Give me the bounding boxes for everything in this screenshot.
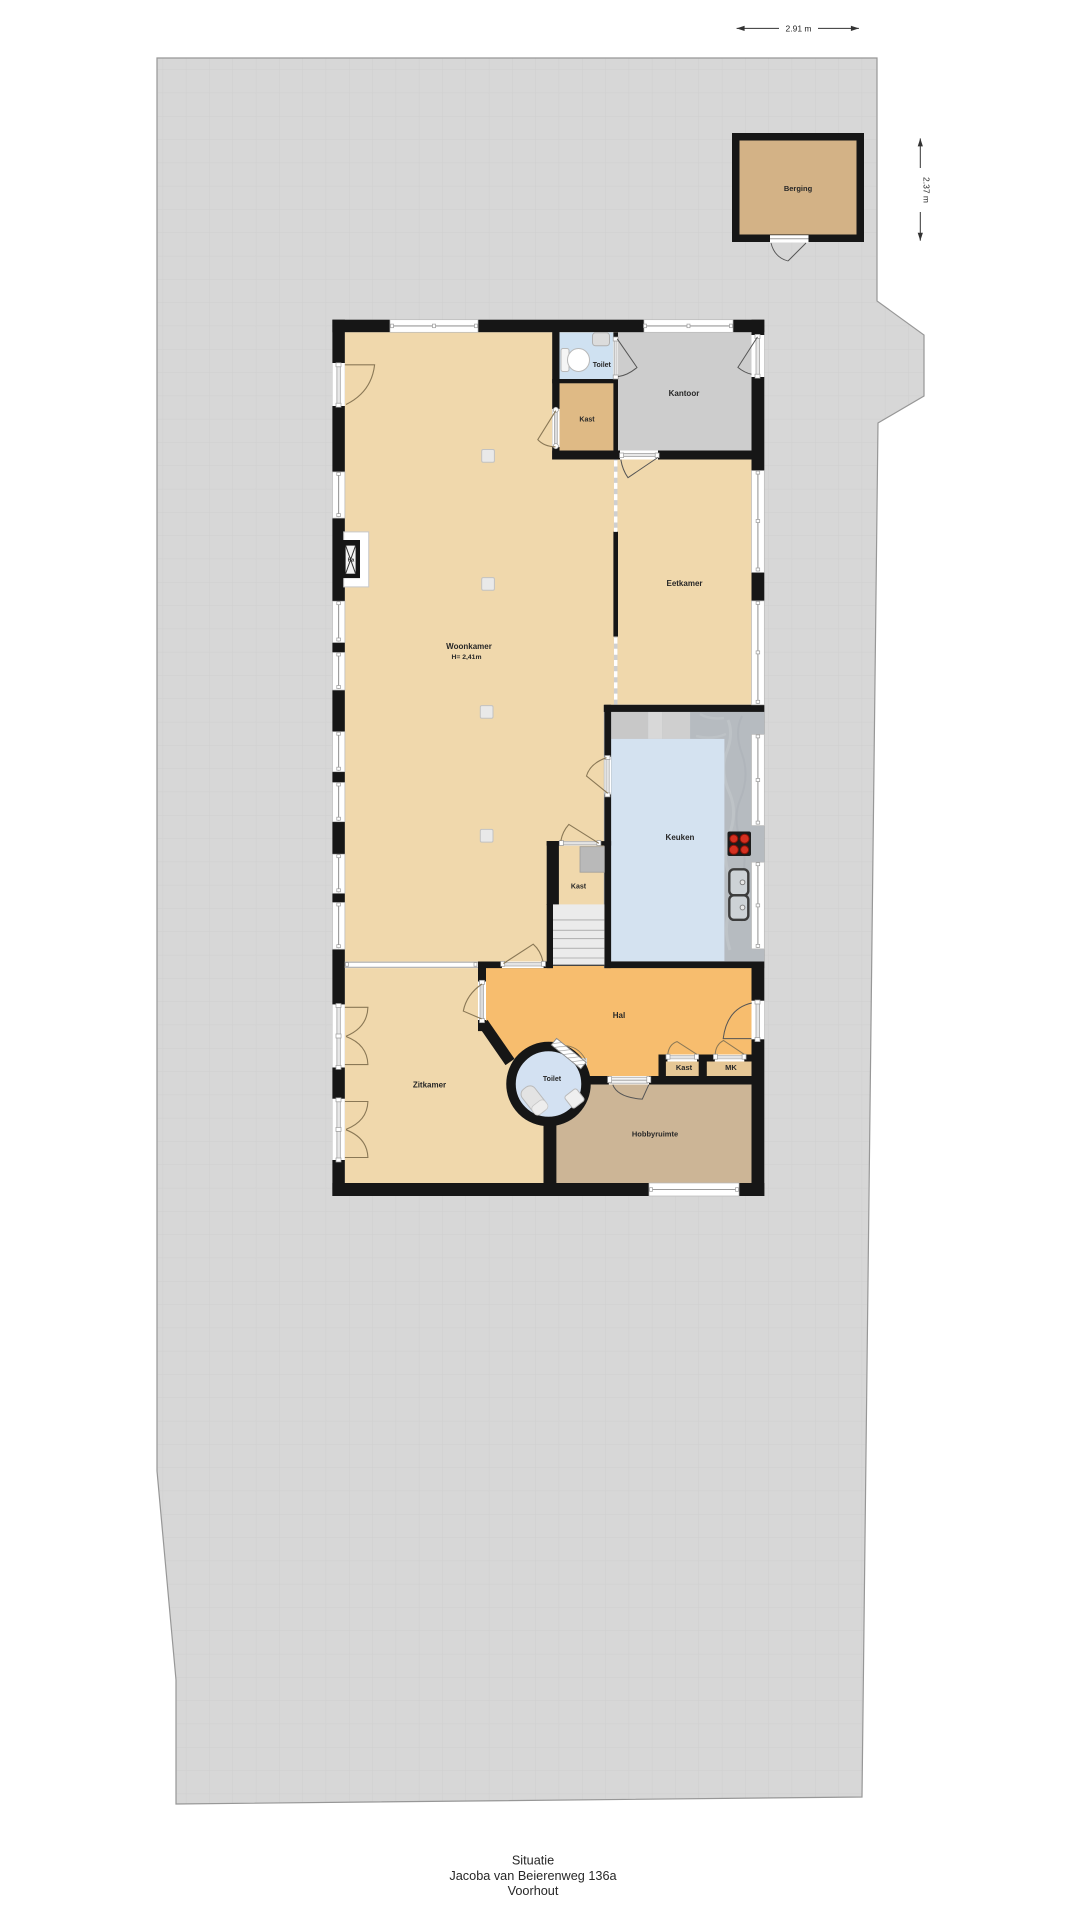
svg-text:Kantoor: Kantoor: [669, 389, 700, 398]
svg-text:Toilet: Toilet: [593, 362, 612, 369]
svg-text:H= 2,41m: H= 2,41m: [451, 654, 481, 661]
svg-text:Berging: Berging: [784, 184, 813, 193]
svg-text:Jacoba van Beierenweg 136a: Jacoba van Beierenweg 136a: [449, 1869, 617, 1883]
svg-text:Toilet: Toilet: [543, 1076, 562, 1083]
svg-text:MK: MK: [725, 1063, 737, 1072]
svg-text:Woonkamer: Woonkamer: [446, 642, 492, 651]
svg-text:Zitkamer: Zitkamer: [413, 1080, 446, 1089]
svg-text:Situatie: Situatie: [512, 1854, 554, 1868]
svg-text:Hobbyruimte: Hobbyruimte: [632, 1130, 678, 1139]
svg-text:2.37 m: 2.37 m: [921, 177, 931, 203]
svg-text:Keuken: Keuken: [666, 833, 695, 842]
svg-text:Kast: Kast: [676, 1063, 693, 1072]
svg-text:Ha: Ha: [348, 558, 355, 564]
svg-text:Hal: Hal: [613, 1011, 625, 1020]
svg-text:Kast: Kast: [579, 417, 595, 424]
svg-text:Kast: Kast: [571, 884, 587, 891]
svg-text:Voorhout: Voorhout: [508, 1884, 559, 1898]
svg-text:Eetkamer: Eetkamer: [666, 579, 702, 588]
svg-text:2.91 m: 2.91 m: [786, 23, 812, 33]
